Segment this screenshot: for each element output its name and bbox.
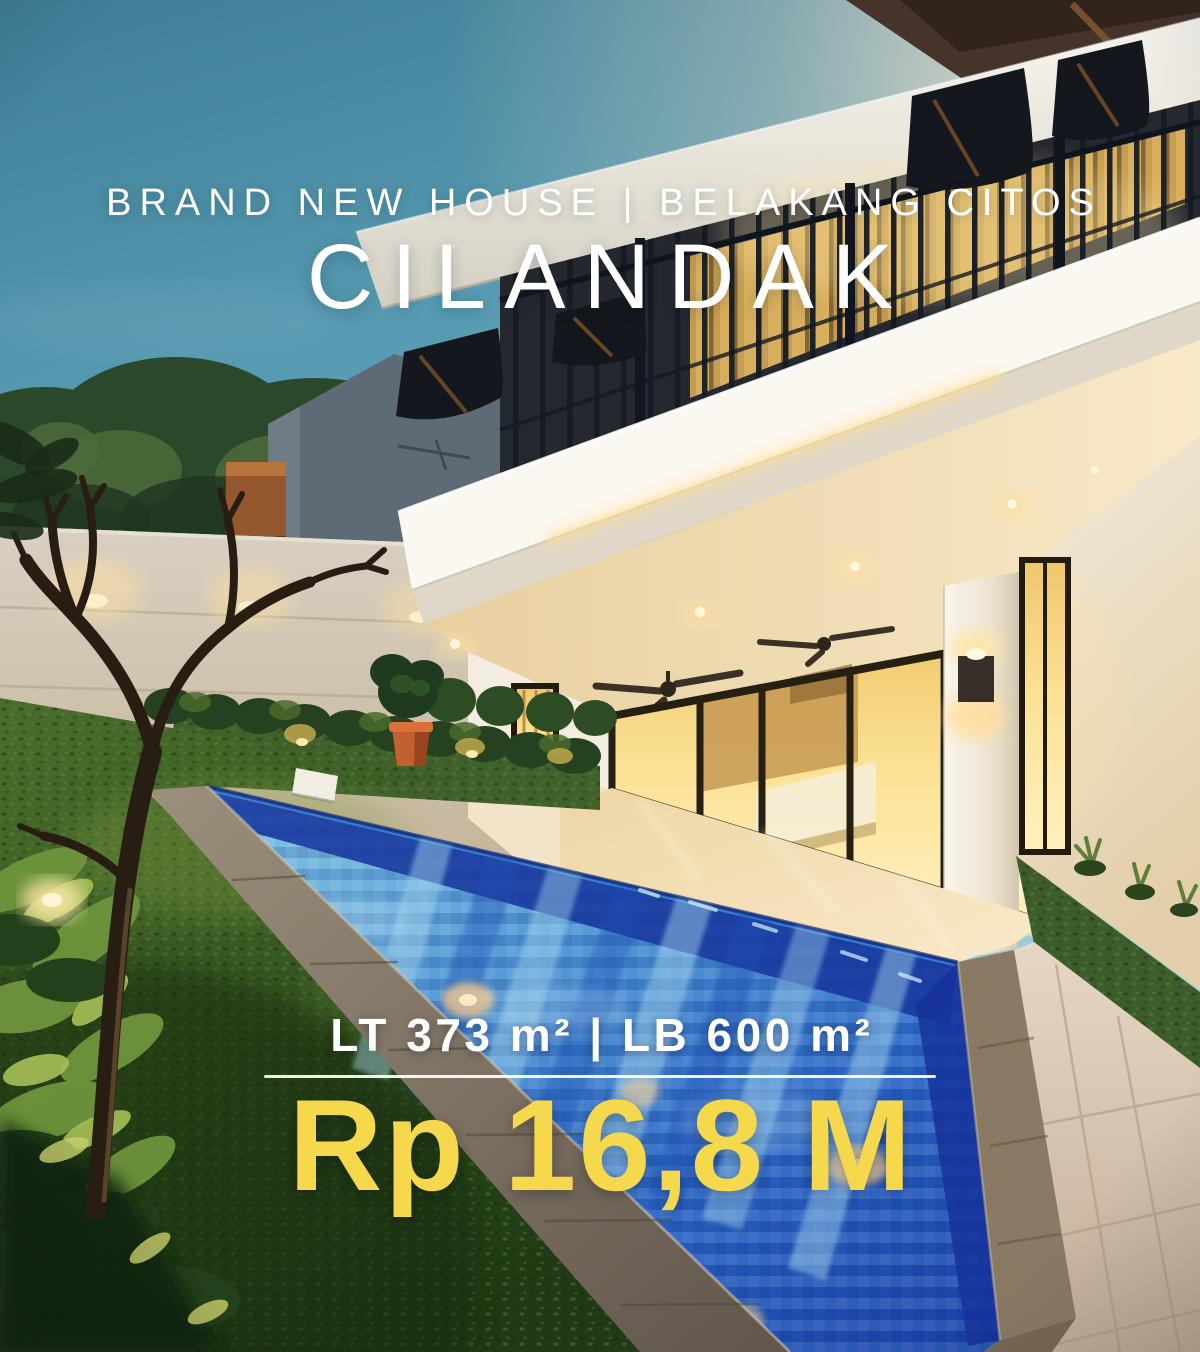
specs-line: LT 373 m² | LB 600 m²	[0, 1012, 1200, 1058]
location-title: CILANDAK	[0, 231, 1200, 323]
price-tag: Rp 16,8 M	[0, 1080, 1200, 1210]
property-poster: BRAND NEW HOUSE | BELAKANG CITOS CILANDA…	[0, 0, 1200, 1352]
headline-text: BRAND NEW HOUSE | BELAKANG CITOS	[0, 184, 1200, 222]
